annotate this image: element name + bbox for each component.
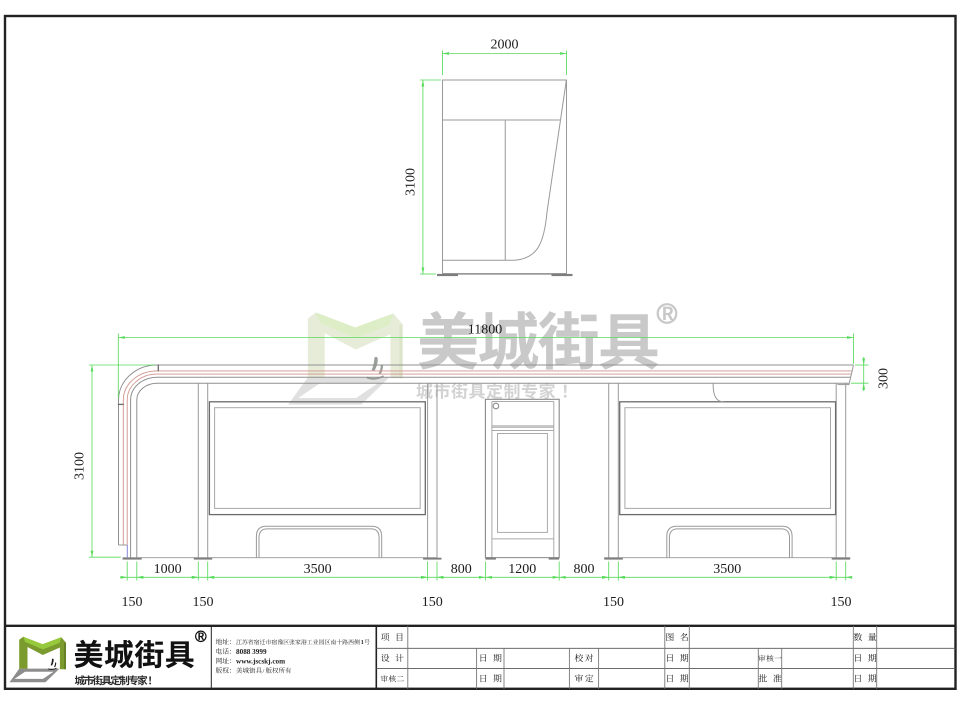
svg-text:/: / bbox=[263, 668, 265, 675]
svg-text:8088 3999: 8088 3999 bbox=[236, 648, 267, 656]
svg-text:800: 800 bbox=[574, 562, 595, 577]
svg-text:1000: 1000 bbox=[154, 562, 182, 577]
svg-text:300: 300 bbox=[877, 368, 892, 389]
svg-text:800: 800 bbox=[451, 562, 472, 577]
svg-text:1: 1 bbox=[361, 640, 364, 646]
svg-text:2000: 2000 bbox=[491, 38, 519, 53]
svg-text:150: 150 bbox=[831, 595, 852, 610]
svg-text:150: 150 bbox=[193, 595, 214, 610]
svg-text:150: 150 bbox=[422, 595, 443, 610]
svg-text:www.jscskj.com: www.jscskj.com bbox=[236, 658, 285, 666]
svg-text:1200: 1200 bbox=[508, 562, 536, 577]
svg-text:3100: 3100 bbox=[73, 452, 88, 480]
svg-text:11800: 11800 bbox=[468, 323, 502, 338]
svg-text:3100: 3100 bbox=[403, 168, 418, 196]
svg-text:3500: 3500 bbox=[304, 562, 332, 577]
svg-text:150: 150 bbox=[603, 595, 624, 610]
svg-text:3500: 3500 bbox=[713, 562, 741, 577]
svg-text:150: 150 bbox=[122, 595, 143, 610]
